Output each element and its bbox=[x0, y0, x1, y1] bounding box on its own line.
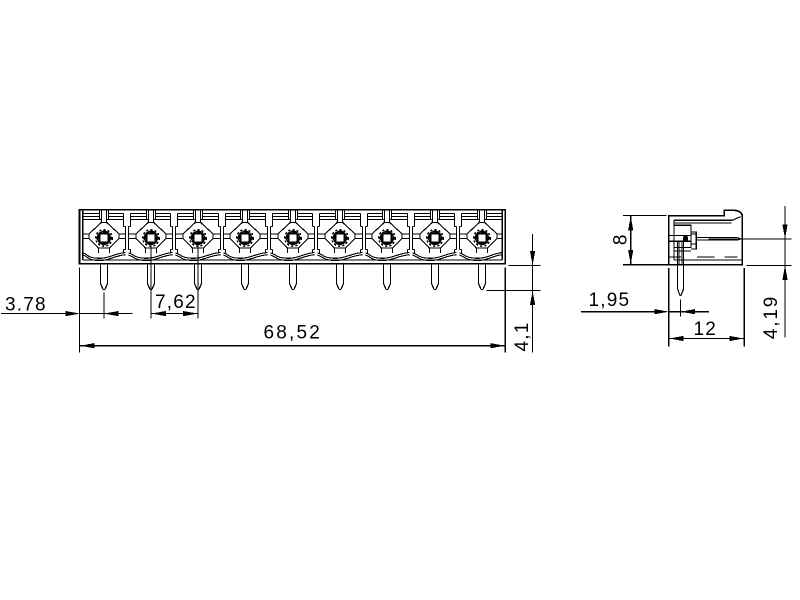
svg-text:4,19: 4,19 bbox=[761, 295, 782, 339]
svg-text:12: 12 bbox=[694, 319, 718, 340]
svg-text:3.78: 3.78 bbox=[5, 295, 47, 316]
svg-text:7,62: 7,62 bbox=[155, 292, 197, 313]
svg-text:1,95: 1,95 bbox=[589, 290, 631, 311]
svg-text:8: 8 bbox=[611, 235, 632, 246]
svg-text:68,52: 68,52 bbox=[264, 323, 323, 344]
svg-text:4,1: 4,1 bbox=[512, 321, 533, 351]
